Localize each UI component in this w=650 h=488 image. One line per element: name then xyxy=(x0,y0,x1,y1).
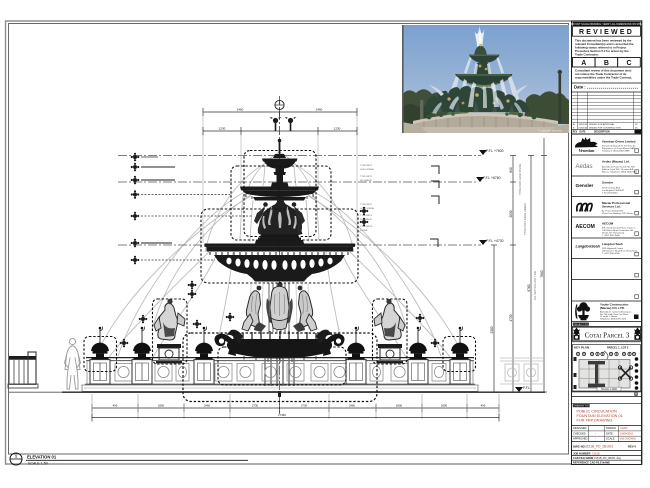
svg-text:Venetian Orient Limited: Venetian Orient Limited xyxy=(602,139,636,143)
svg-text:PROJECT TITLE: PROJECT TITLE xyxy=(574,324,591,326)
svg-text:A: A xyxy=(581,60,586,67)
svg-text:2730: 2730 xyxy=(252,404,259,408)
svg-text:DATE: DATE xyxy=(606,431,613,435)
svg-text:GOLD FINISH: GOLD FINISH xyxy=(360,208,374,210)
svg-text:CAD FILE NAME: CAD FILE NAME xyxy=(573,456,594,460)
svg-text:DATE: DATE xyxy=(580,131,587,134)
svg-text:© copyright reserved: © copyright reserved xyxy=(538,129,563,133)
svg-text:TYPE FRP2 GOLD FINISH: TYPE FRP2 GOLD FINISH xyxy=(518,163,522,195)
svg-text:2460: 2460 xyxy=(349,404,356,408)
svg-text:FOR FRP DRAWING: FOR FRP DRAWING xyxy=(577,418,613,422)
svg-text:responsibilities under the Tra: responsibilities under the Trade Contrac… xyxy=(575,76,632,80)
svg-text:F.F.L +7600: F.F.L +7600 xyxy=(486,149,504,153)
svg-text:COTAI PARCEL 3: COTAI PARCEL 3 xyxy=(585,332,630,340)
svg-text:4730: 4730 xyxy=(509,314,513,321)
svg-text:17460: 17460 xyxy=(278,413,286,417)
svg-text:Services Ltd.: Services Ltd. xyxy=(602,204,621,208)
svg-text:3151B: 3151B xyxy=(592,451,600,455)
svg-text:CHAD: CHAD xyxy=(620,426,627,430)
svg-text:Aedas (Macau) Ltd.: Aedas (Macau) Ltd. xyxy=(602,159,630,163)
svg-text:TYPE FRP1 DARK GREEN: TYPE FRP1 DARK GREEN xyxy=(523,203,527,235)
svg-text:Telephone: (853) 2882 8888: Telephone: (853) 2882 8888 xyxy=(602,150,630,152)
svg-text:F.F.L +6760: F.F.L +6760 xyxy=(483,176,501,180)
svg-text:840: 840 xyxy=(509,167,513,173)
svg-text:3151B_PD_2B1001: 3151B_PD_2B1001 xyxy=(585,445,613,449)
svg-text:7600: 7600 xyxy=(540,270,544,277)
svg-text:F.F.L +4730: F.F.L +4730 xyxy=(486,239,504,243)
svg-text:1230: 1230 xyxy=(219,127,226,131)
svg-text:DO NOT SCALE DRAWING. VERIFY A: DO NOT SCALE DRAWING. VERIFY ALL DIMENSI… xyxy=(571,23,642,26)
svg-text:DK GREEN: DK GREEN xyxy=(360,219,372,221)
svg-text:Trade Contractor.: Trade Contractor. xyxy=(575,53,599,57)
svg-text:TYPE FRP1: TYPE FRP1 xyxy=(360,176,373,178)
svg-text:1230: 1230 xyxy=(334,127,341,131)
svg-text:-: - xyxy=(595,432,596,435)
svg-text:JOB NUMBER: JOB NUMBER xyxy=(573,451,591,455)
svg-text:2460: 2460 xyxy=(204,404,211,408)
svg-text:STONE: STONE xyxy=(360,230,368,232)
svg-text:1800: 1800 xyxy=(441,404,448,408)
svg-text:(Macau) CO. LTD.: (Macau) CO. LTD. xyxy=(600,306,625,310)
svg-text:15/02/16: 15/02/16 xyxy=(579,124,588,126)
svg-text:ELEVATION 01: ELEVATION 01 xyxy=(27,455,57,460)
svg-text:ISSUED FOR APPROVAL: ISSUED FOR APPROVAL xyxy=(589,123,615,126)
svg-text:DESCRIPTION: DESCRIPTION xyxy=(594,132,610,134)
svg-text:SCALE: SCALE xyxy=(606,437,615,441)
svg-text:T +852 3922 9000: T +852 3922 9000 xyxy=(602,235,621,237)
svg-text:TYPE FRP2: TYPE FRP2 xyxy=(360,165,373,167)
svg-text:DK GREEN: DK GREEN xyxy=(360,180,372,182)
svg-text:AECOM: AECOM xyxy=(576,224,595,230)
svg-text:F.F.L: F.F.L xyxy=(523,386,530,390)
svg-text:FOUNTAIN ELEVATION 01: FOUNTAIN ELEVATION 01 xyxy=(577,414,623,418)
svg-text:TYPE FRP1: TYPE FRP1 xyxy=(360,215,373,217)
svg-text:GOLD FINISH: GOLD FINISH xyxy=(360,169,374,171)
svg-text:Langdon Seah: Langdon Seah xyxy=(602,242,623,246)
svg-text:APPROVED: APPROVED xyxy=(573,437,588,441)
svg-text:PUBLIC CIRCULATION: PUBLIC CIRCULATION xyxy=(577,410,617,414)
svg-text:CHECKED: CHECKED xyxy=(573,431,586,435)
svg-text:REV 0: REV 0 xyxy=(628,445,637,449)
svg-text:FFL SETTING OUT LINE: FFL SETTING OUT LINE xyxy=(533,271,537,300)
svg-text:-: - xyxy=(595,438,596,441)
svg-text:TYPE FRP2: TYPE FRP2 xyxy=(360,204,373,206)
svg-text:400: 400 xyxy=(481,404,486,408)
svg-text:China Law Building 21/F, Macau: China Law Building 21/F, Macau xyxy=(602,213,634,215)
svg-text:REFERENCE CAD FILE NAME: REFERENCE CAD FILE NAME xyxy=(573,461,610,465)
svg-text:DWG NO: DWG NO xyxy=(573,445,586,449)
svg-text:01/04/2016: 01/04/2016 xyxy=(620,431,634,435)
svg-text:PARCEL 1, LOT 2: PARCEL 1, LOT 2 xyxy=(607,346,629,350)
svg-text:2300: 2300 xyxy=(490,326,494,333)
svg-text:2030: 2030 xyxy=(509,210,513,217)
svg-text:400: 400 xyxy=(113,404,118,408)
svg-text:2460: 2460 xyxy=(316,108,323,112)
svg-text:Gensler: Gensler xyxy=(602,180,614,184)
svg-text:C: C xyxy=(626,60,631,67)
svg-text:SCALE 1:50: SCALE 1:50 xyxy=(28,461,48,465)
svg-text:Gensler: Gensler xyxy=(576,183,594,189)
svg-text:LangdonSeah: LangdonSeah xyxy=(576,245,601,249)
svg-text:KEY PLAN: KEY PLAN xyxy=(574,346,589,350)
svg-text:DESIGNED: DESIGNED xyxy=(573,426,587,430)
svg-text:REVIEWED: REVIEWED xyxy=(579,29,634,36)
svg-text:DRAWING TITLE: DRAWING TITLE xyxy=(574,405,592,408)
svg-text:DRAWN: DRAWN xyxy=(606,426,616,430)
svg-text:B: B xyxy=(604,60,609,67)
svg-text:Telephone: (853) 2875 3555: Telephone: (853) 2875 3555 xyxy=(600,319,627,321)
svg-text:T 310.553.5600: T 310.553.5600 xyxy=(602,192,618,194)
svg-text:AECOM: AECOM xyxy=(602,221,614,225)
svg-text:2460: 2460 xyxy=(237,108,244,112)
svg-text:Macau, Telephone: (853) 2833 3: Macau, Telephone: (853) 2833 3301 xyxy=(602,171,638,173)
svg-text:Aedas: Aedas xyxy=(576,164,593,170)
svg-text:TYPE FRP3: TYPE FRP3 xyxy=(360,226,373,228)
svg-text:6760: 6760 xyxy=(527,284,531,291)
svg-text:2730: 2730 xyxy=(301,404,308,408)
svg-text:Venetian: Venetian xyxy=(579,148,595,153)
svg-text:3151B_PD_2B001.dwg: 3151B_PD_2B001.dwg xyxy=(594,456,622,460)
svg-text:1800: 1800 xyxy=(396,404,403,408)
svg-text:(AS SHOWN): (AS SHOWN) xyxy=(620,437,636,441)
svg-text:T +852 2830 3500: T +852 2830 3500 xyxy=(602,253,621,255)
svg-text:REV: REV xyxy=(573,132,578,134)
svg-text:1800: 1800 xyxy=(158,404,165,408)
svg-text:Date :: Date : xyxy=(574,85,586,90)
svg-text:SCALE 1:1000: SCALE 1:1000 xyxy=(601,388,617,391)
